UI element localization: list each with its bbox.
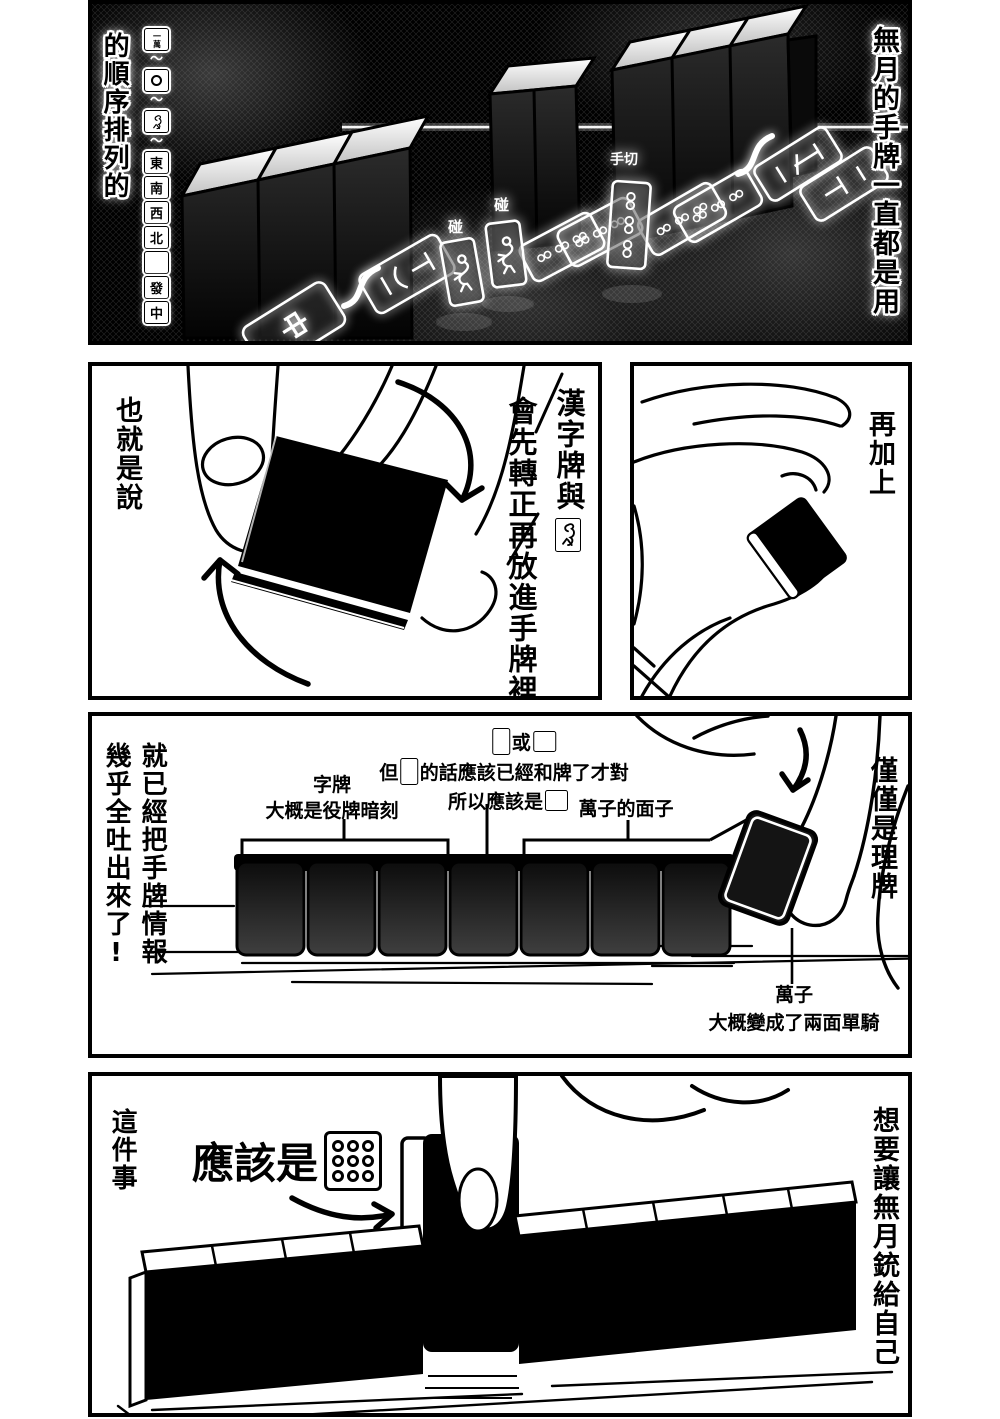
narration-left: 的順序排列的 (100, 32, 128, 200)
pon-label-left: 碰 (448, 218, 463, 236)
pinched-tile (744, 494, 849, 601)
dialog-info-revealed-1: 就已經把手牌情報 (138, 742, 166, 966)
pin-tile-icon (144, 69, 169, 92)
annotation-manzu-label: 萬子的面子 (578, 794, 673, 821)
top-scene-art: 中 (92, 4, 908, 341)
annotation-manzu-bottom: 萬子 (775, 980, 813, 1007)
dialog-also-means: 也就是說 (112, 396, 141, 512)
annotation-should-be-9p: 所以應該是 (448, 787, 568, 814)
north-tile: 北 (144, 226, 169, 249)
west-tile: 西 (144, 201, 169, 224)
sou-tile-icon (144, 110, 169, 133)
green-dragon-tile: 發 (144, 276, 169, 299)
bubble-line2: 會先轉正再放進手牌裡! (505, 396, 536, 700)
bubble-line1: 漢字牌與 (553, 388, 584, 512)
sou1-tile-icon (555, 518, 581, 552)
annotation-honor-label: 字牌 (313, 770, 351, 797)
panel-top-scene: 中 (88, 0, 912, 345)
panel-pinch-tile: 再加上 (630, 362, 912, 700)
tile-row-left-block (130, 1226, 423, 1406)
dialog-this-matter: 這件事 (108, 1108, 136, 1192)
tegiri-label: 手切 (610, 151, 638, 168)
9-pin-tile-icon-rotated (533, 731, 556, 752)
red-dragon-tile: 中 (144, 301, 169, 324)
annotation-but-8p: 但 的話應該已經和牌了才對 (379, 758, 629, 785)
but-text: 但 (379, 758, 398, 785)
9-pin-tile-icon-rotated (545, 790, 568, 811)
9-pin-tile-icon-large (324, 1131, 382, 1191)
place-tile-arrow (782, 730, 808, 790)
panel-rotate-tile: 也就是說 漢字牌與 會先轉正再放進手牌裡! (88, 362, 602, 700)
8-pin-tile-icon (492, 728, 510, 755)
annotation-manzu-bottom-sub: 大概變成了兩面單騎 (708, 1008, 879, 1035)
face-down-tile-row (237, 862, 730, 955)
callout-arrow (292, 1198, 392, 1228)
dialog-just-sorting: 僅僅是理牌 (867, 756, 896, 901)
dialog-info-revealed-2: 幾乎全吐出來了! (102, 742, 130, 970)
panel-hand-analysis: 就已經把手牌情報 幾乎全吐出來了! 僅僅是理牌 或 但 的話應該已經和牌了才對 … (88, 712, 912, 1058)
callout-text: 應該是 (192, 1130, 318, 1191)
narration-right: 無月的手牌一直都是用 (869, 26, 898, 316)
slide-tile-art (92, 1076, 908, 1413)
tilde-separator: 〜 (150, 94, 163, 108)
manga-page: 中 (0, 0, 1000, 1419)
tilde-separator: 〜 (150, 135, 163, 149)
tegiri-tile (607, 181, 651, 269)
south-tile: 南 (144, 176, 169, 199)
dialog-in-addition: 再加上 (865, 410, 894, 497)
8-pin-tile-icon (400, 758, 418, 785)
tile-order-strip: 一萬 〜 〜 〜 東 南 西 北 發 中 (144, 28, 169, 324)
tile-row-right-block (515, 1182, 856, 1364)
tilde-separator: 〜 (150, 53, 163, 67)
bubble-kanji-tiles: 漢字牌與 (553, 388, 584, 552)
callout-should-be: 應該是 (192, 1130, 382, 1191)
annotation-honor-sub: 大概是役牌暗刻 (265, 796, 398, 823)
panel-slide-tile: 這件事 應該是 想要讓無月銃給自己 (88, 1072, 912, 1417)
east-tile: 東 (144, 151, 169, 174)
blank-tile-icon (144, 251, 169, 274)
but-post-text: 的話應該已經和牌了才對 (420, 758, 629, 785)
should-be-text: 所以應該是 (448, 787, 543, 814)
pon-tile-2 (485, 220, 527, 288)
annotation-8p-or-9p: 或 (492, 728, 556, 755)
or-text: 或 (512, 728, 531, 755)
pon-label-right: 碰 (494, 196, 509, 214)
dialog-want-mutsuki-deal-in: 想要讓無月銃給自己 (869, 1106, 898, 1367)
man1-tile-icon: 一萬 (144, 28, 169, 51)
